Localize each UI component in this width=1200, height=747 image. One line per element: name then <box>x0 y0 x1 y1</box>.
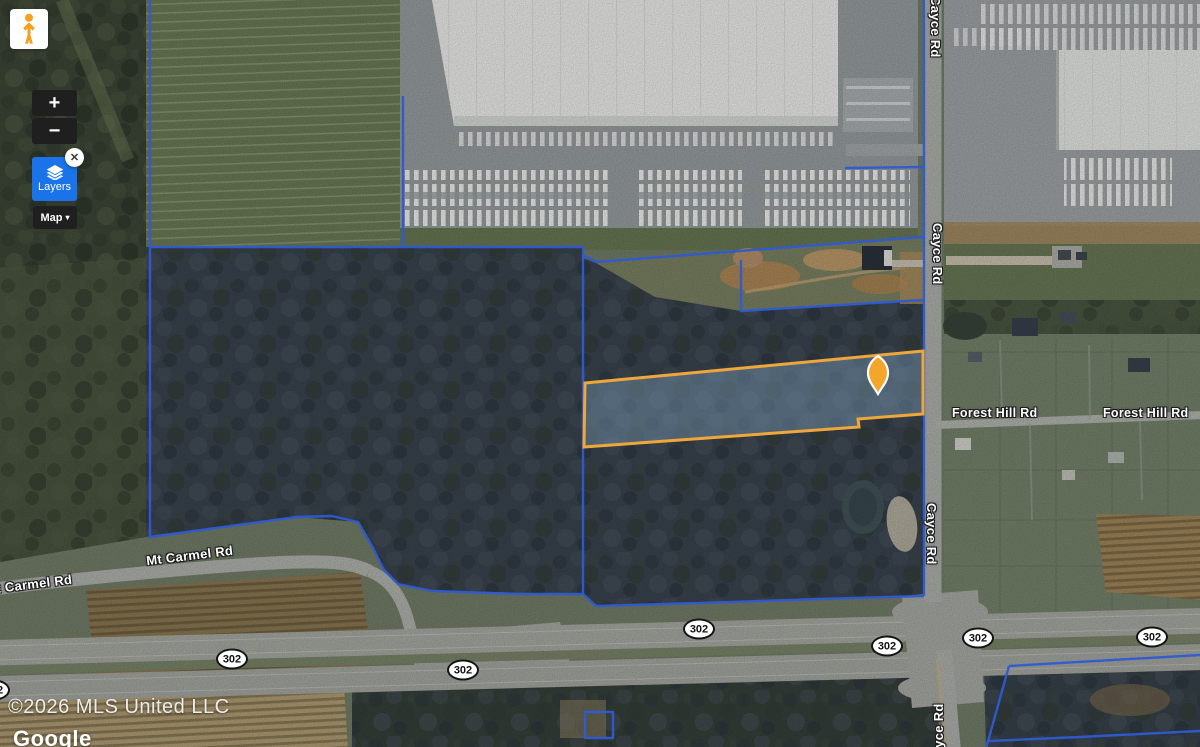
layers-icon <box>45 165 65 180</box>
road-label-cayce-rd-lower: Cayce Rd <box>924 503 939 565</box>
route-shield-302: 302 <box>216 649 248 670</box>
google-logo[interactable]: Google <box>13 726 92 747</box>
route-shield-label: 302 <box>690 623 708 635</box>
photo-grain <box>0 0 1200 747</box>
map-type-button[interactable]: Map ▾ <box>33 206 77 229</box>
route-shield-label: 302 <box>878 640 896 652</box>
road-label-cayce-rd-bottom: Cayce Rd <box>931 703 946 747</box>
road-label-forest-hill-rd-2: Forest Hill Rd <box>1103 406 1188 420</box>
route-shield-label: 302 <box>0 684 3 696</box>
close-icon: ✕ <box>70 151 79 164</box>
route-shield-302: 302 <box>447 660 479 681</box>
copyright-attribution: ©2026 MLS United LLC <box>8 696 230 719</box>
map-canvas[interactable]: Cayce Rd Cayce Rd Cayce Rd Cayce Rd Fore… <box>0 0 1200 747</box>
route-shield-302: 302 <box>871 636 903 657</box>
chevron-down-icon: ▾ <box>65 213 69 222</box>
zoom-out-button[interactable]: − <box>32 118 77 144</box>
satellite-scene <box>0 0 1200 747</box>
road-label-forest-hill-rd-1: Forest Hill Rd <box>952 406 1037 420</box>
route-shield-302: 302 <box>683 619 715 640</box>
close-layers-button[interactable]: ✕ <box>65 148 84 167</box>
property-marker-icon[interactable] <box>864 354 892 396</box>
road-label-cayce-rd-mid: Cayce Rd <box>930 223 945 285</box>
route-shield-label: 302 <box>1143 631 1161 643</box>
route-shield-label: 302 <box>454 664 472 676</box>
zoom-in-button[interactable]: + <box>32 90 77 116</box>
route-shield-302: 302 <box>962 628 994 649</box>
road-label-cayce-rd-top: Cayce Rd <box>928 0 943 58</box>
pegman-button[interactable] <box>10 9 48 49</box>
route-shield-302: 302 <box>1136 627 1168 648</box>
route-shield-label: 302 <box>223 653 241 665</box>
pegman-icon <box>18 13 40 45</box>
zoom-in-label: + <box>49 92 61 115</box>
zoom-out-label: − <box>49 120 61 143</box>
route-shield-label: 302 <box>969 632 987 644</box>
layers-label: Layers <box>38 181 71 193</box>
map-type-label: Map <box>40 212 62 224</box>
